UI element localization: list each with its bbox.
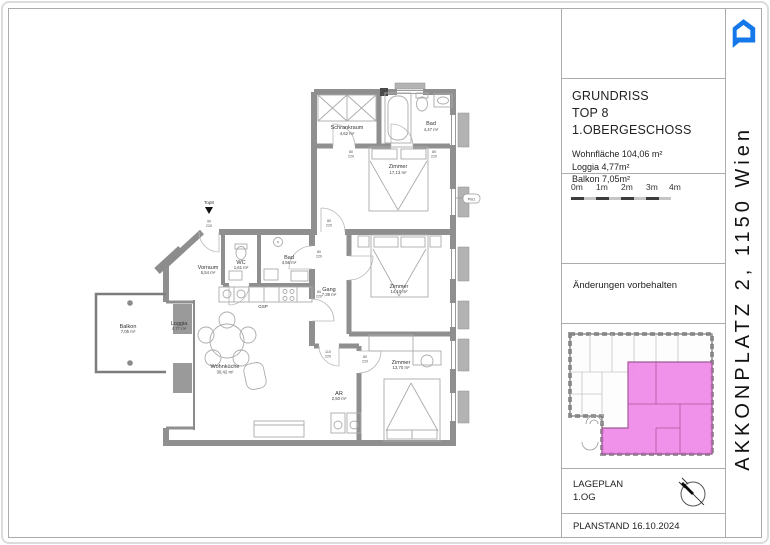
svg-text:220: 220 [316, 295, 322, 299]
scale-4m: 4m [669, 182, 681, 192]
room-zimmer-17: Zimmer17,13 m² [389, 164, 408, 175]
svg-text:80: 80 [349, 150, 353, 154]
site-plan-box [562, 323, 725, 468]
loggia-door-panel [173, 363, 192, 393]
scale-bar-box: 0m 1m 2m 3m 4m [562, 173, 725, 263]
windows [395, 83, 469, 423]
title-column: GRUNDRISS TOP 8 1.OBERGESCHOSS Wohnfläch… [561, 9, 726, 537]
north-arrow-icon [673, 472, 713, 512]
title-block: GRUNDRISS TOP 8 1.OBERGESCHOSS Wohnfläch… [562, 78, 725, 173]
svg-text:4,56 m²: 4,56 m² [282, 260, 297, 265]
svg-text:1,61 m²: 1,61 m² [234, 265, 249, 270]
planstand-box: PLANSTAND 16.10.2024 [562, 513, 725, 537]
disclaimer-box: Änderungen vorbehalten [562, 263, 725, 323]
room-wc: WC1,61 m² [234, 260, 249, 270]
svg-text:Top8: Top8 [204, 200, 214, 205]
svg-text:220: 220 [206, 224, 212, 228]
bed-zimmer-17 [369, 147, 428, 211]
svg-text:90: 90 [207, 220, 211, 224]
svg-text:PB1: PB1 [468, 197, 476, 202]
svg-text:220: 220 [362, 360, 368, 364]
svg-text:220: 220 [325, 355, 331, 359]
stairwell [582, 416, 602, 450]
svg-text:80: 80 [363, 355, 367, 359]
room-zimmer-13: Zimmer13,70 m² [392, 360, 411, 370]
svg-text:110: 110 [325, 350, 331, 354]
bathtub [385, 93, 411, 143]
scale-0m: 0m [571, 182, 583, 192]
room-bad-mid: Bad4,56 m² [282, 255, 297, 265]
plan-sheet: Schrankraum4,62 m² Bad4,47 m² Zimmer17,1… [8, 8, 762, 538]
scale-labels: 0m 1m 2m 3m 4m [571, 182, 691, 193]
svg-text:4,47 m²: 4,47 m² [424, 127, 439, 132]
svg-text:7,05 m²: 7,05 m² [121, 329, 136, 334]
room-ar: AR2,50 m² [332, 391, 347, 401]
disclaimer-text: Änderungen vorbehalten [573, 280, 725, 291]
room-zimmer-14: Zimmer14,10 m² [390, 284, 409, 294]
scale-1m: 1m [596, 182, 608, 192]
shaft [380, 88, 388, 96]
scale-2m: 2m [621, 182, 633, 192]
svg-text:80: 80 [432, 150, 436, 154]
entrance-marker: Top8 [204, 200, 214, 214]
sofa [254, 421, 304, 437]
svg-text:220: 220 [431, 155, 437, 159]
empty-header-box [562, 9, 725, 78]
floor-plan-area: Schrankraum4,62 m² Bad4,47 m² Zimmer17,1… [9, 9, 561, 537]
svg-text:30,42 m²: 30,42 m² [217, 370, 235, 375]
svg-text:80: 80 [327, 219, 331, 223]
svg-text:80: 80 [317, 250, 321, 254]
dining-table [198, 312, 256, 366]
brand-logo-icon [730, 17, 757, 50]
svg-text:80: 80 [317, 290, 321, 294]
living-area: Wohnfläche 104,06 m² [572, 148, 725, 161]
armchair [243, 361, 268, 391]
entrance-arrow-icon [205, 207, 213, 214]
svg-text:220: 220 [348, 155, 354, 159]
scale-3m: 3m [646, 182, 658, 192]
svg-text:2,50 m²: 2,50 m² [332, 396, 347, 401]
address-strip: AKKONPLATZ 2, 1150 Wien [725, 9, 761, 537]
room-bad-top: Bad4,47 m² [424, 121, 439, 132]
room-balkon: Balkon7,05 m² [120, 324, 137, 334]
svg-text:14,10 m²: 14,10 m² [391, 289, 409, 294]
loggia-area: Loggia 4,77m² [572, 161, 725, 174]
svg-text:220: 220 [326, 224, 332, 228]
room-schrankraum: Schrankraum4,62 m² [331, 125, 364, 136]
room-gang: Gang7,39 m² [322, 287, 337, 297]
drawing-type: GRUNDRISS [572, 88, 725, 105]
washbasin [434, 94, 452, 107]
address-text: AKKONPLATZ 2, 1150 Wien [732, 126, 755, 471]
kitchen-counter [219, 287, 312, 302]
scale-bar [571, 197, 671, 200]
svg-text:17,13 m²: 17,13 m² [390, 170, 408, 175]
svg-text:220: 220 [316, 255, 322, 259]
bed-zimmer-13 [384, 379, 440, 441]
svg-text:4,77 m²: 4,77 m² [172, 326, 187, 331]
svg-text:4,62 m²: 4,62 m² [340, 131, 355, 136]
floor-name: 1.OBERGESCHOSS [572, 122, 725, 139]
svg-text:5,54 m²: 5,54 m² [201, 270, 216, 275]
room-loggia: Loggia4,77 m² [171, 321, 188, 331]
svg-text:7,39 m²: 7,39 m² [322, 292, 337, 297]
toilet [416, 93, 428, 111]
room-wohnkueche: Wohnküche30,42 m² [211, 364, 240, 375]
unit-number: TOP 8 [572, 105, 725, 122]
site-plan-minimap [562, 324, 725, 468]
room-vorraum: Vorraum5,54 m² [198, 265, 219, 275]
lageplan-label-box: LAGEPLAN 1.OG [562, 468, 725, 513]
planstand-text: PLANSTAND 16.10.2024 [573, 521, 725, 532]
kitchen-gsp-label: GSP [258, 304, 268, 309]
wardrobe [318, 95, 376, 121]
svg-text:13,70 m²: 13,70 m² [393, 365, 411, 370]
floor-plan-drawing: Schrankraum4,62 m² Bad4,47 m² Zimmer17,1… [9, 9, 561, 537]
